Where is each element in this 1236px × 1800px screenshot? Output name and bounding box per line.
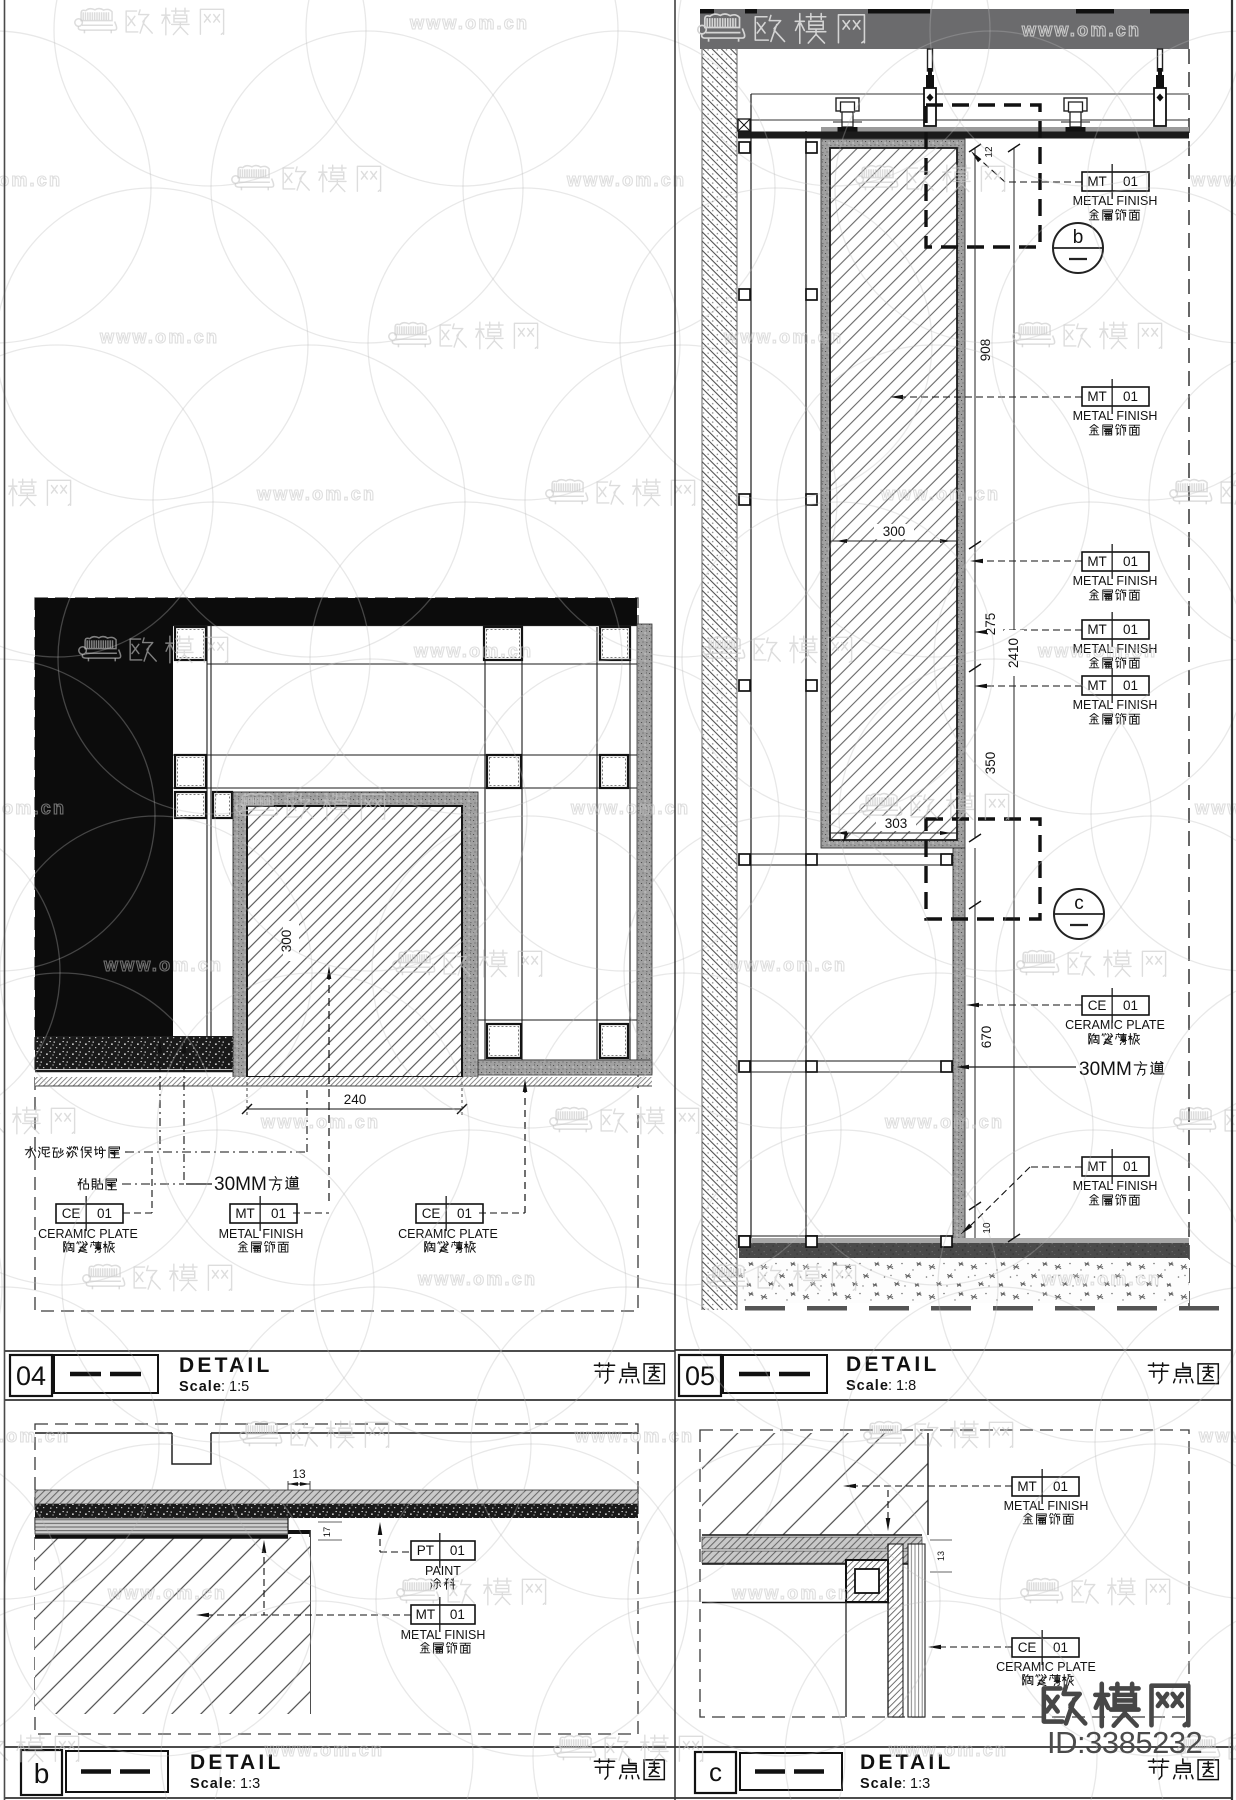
svg-text:13: 13 bbox=[936, 1551, 946, 1561]
svg-text:MT: MT bbox=[235, 1206, 255, 1221]
svg-text:: 1:8: : 1:8 bbox=[888, 1378, 916, 1394]
svg-text:www.om.cn: www.om.cn bbox=[0, 798, 66, 818]
svg-text:: 1:3: : 1:3 bbox=[232, 1776, 260, 1792]
svg-text:METAL FINISH: METAL FINISH bbox=[219, 1227, 304, 1241]
svg-text:04: 04 bbox=[16, 1361, 46, 1391]
svg-text:www.om.cn: www.om.cn bbox=[0, 170, 62, 190]
svg-text:240: 240 bbox=[344, 1092, 367, 1107]
svg-text:www.om.cn: www.om.cn bbox=[1037, 641, 1157, 661]
svg-text:www.om.cn: www.om.cn bbox=[1198, 1426, 1236, 1446]
svg-text:01: 01 bbox=[1123, 998, 1138, 1013]
svg-text:www.om.cn: www.om.cn bbox=[723, 327, 843, 347]
svg-text:01: 01 bbox=[457, 1206, 472, 1221]
svg-text:c: c bbox=[709, 1757, 722, 1787]
svg-text:01: 01 bbox=[1123, 622, 1138, 637]
svg-text:01: 01 bbox=[271, 1206, 286, 1221]
svg-text:www.om.cn: www.om.cn bbox=[884, 1112, 1004, 1132]
svg-text:01: 01 bbox=[1053, 1640, 1068, 1655]
svg-text:www.om.cn: www.om.cn bbox=[99, 327, 219, 347]
svg-text:www.om.cn: www.om.cn bbox=[103, 955, 223, 975]
svg-text:CERAMIC PLATE: CERAMIC PLATE bbox=[398, 1227, 498, 1241]
svg-text:www.om.cn: www.om.cn bbox=[566, 170, 686, 190]
svg-text:300: 300 bbox=[883, 524, 906, 539]
svg-text:www.om.cn: www.om.cn bbox=[256, 484, 376, 504]
svg-text:CE: CE bbox=[1018, 1640, 1037, 1655]
svg-text:05: 05 bbox=[685, 1361, 715, 1391]
svg-text:www.om.cn: www.om.cn bbox=[409, 13, 529, 33]
svg-text:www.om.cn: www.om.cn bbox=[1190, 170, 1236, 190]
svg-text:www.om.cn: www.om.cn bbox=[0, 1426, 70, 1446]
svg-text:www.om.cn: www.om.cn bbox=[1021, 20, 1141, 40]
svg-text:PT: PT bbox=[417, 1543, 434, 1558]
svg-text:www.om.cn: www.om.cn bbox=[1194, 798, 1236, 818]
svg-text:METAL FINISH: METAL FINISH bbox=[1073, 409, 1158, 423]
svg-text:01: 01 bbox=[450, 1607, 465, 1622]
svg-text:www.om.cn: www.om.cn bbox=[570, 798, 690, 818]
svg-text:01: 01 bbox=[450, 1543, 465, 1558]
svg-text:METAL FINISH: METAL FINISH bbox=[1073, 1179, 1158, 1193]
svg-text:www.om.cn: www.om.cn bbox=[574, 1426, 694, 1446]
svg-text:c: c bbox=[1074, 893, 1084, 914]
svg-text:www.om.cn: www.om.cn bbox=[727, 955, 847, 975]
svg-text:MT: MT bbox=[1087, 174, 1107, 189]
svg-text:MT: MT bbox=[1087, 389, 1107, 404]
svg-text:www.om.cn: www.om.cn bbox=[264, 1740, 384, 1760]
svg-text:www.om.cn: www.om.cn bbox=[1041, 1269, 1161, 1289]
svg-text:MT: MT bbox=[416, 1607, 436, 1622]
svg-text:DETAIL: DETAIL bbox=[179, 1354, 272, 1377]
svg-text:CERAMIC PLATE: CERAMIC PLATE bbox=[996, 1660, 1096, 1674]
svg-text:ID:3385232: ID:3385232 bbox=[1047, 1725, 1202, 1760]
svg-text:Scale: Scale bbox=[846, 1378, 889, 1394]
svg-text:01: 01 bbox=[1123, 389, 1138, 404]
svg-text:www.om.cn: www.om.cn bbox=[880, 484, 1000, 504]
svg-text:17: 17 bbox=[322, 1527, 333, 1538]
svg-text:www.om.cn: www.om.cn bbox=[888, 1740, 1008, 1760]
svg-text:www.om.cn: www.om.cn bbox=[260, 1112, 380, 1132]
svg-text:: 1:5: : 1:5 bbox=[221, 1379, 249, 1395]
svg-text:METAL FINISH: METAL FINISH bbox=[1004, 1499, 1089, 1513]
svg-text:30MM: 30MM bbox=[1079, 1059, 1132, 1080]
svg-text:MT: MT bbox=[1087, 554, 1107, 569]
svg-text:MT: MT bbox=[1017, 1479, 1037, 1494]
svg-text:METAL FINISH: METAL FINISH bbox=[1073, 574, 1158, 588]
svg-text:13: 13 bbox=[292, 1467, 306, 1481]
svg-text:www.om.cn: www.om.cn bbox=[731, 1583, 851, 1603]
svg-text:Scale: Scale bbox=[860, 1776, 903, 1792]
svg-text:350: 350 bbox=[983, 752, 998, 775]
svg-text:www.om.cn: www.om.cn bbox=[417, 1269, 537, 1289]
svg-text:b: b bbox=[34, 1758, 50, 1789]
svg-text:www.om.cn: www.om.cn bbox=[107, 1583, 227, 1603]
svg-text:01: 01 bbox=[1123, 554, 1138, 569]
svg-text:10: 10 bbox=[982, 1222, 993, 1234]
svg-text:01: 01 bbox=[97, 1206, 112, 1221]
svg-text:Scale: Scale bbox=[179, 1379, 222, 1395]
svg-text:CERAMIC PLATE: CERAMIC PLATE bbox=[38, 1227, 138, 1241]
svg-text:01: 01 bbox=[1123, 1159, 1138, 1174]
svg-text:01: 01 bbox=[1123, 678, 1138, 693]
svg-text:Scale: Scale bbox=[190, 1776, 233, 1792]
svg-text:30MM: 30MM bbox=[214, 1174, 267, 1195]
svg-text:CERAMIC PLATE: CERAMIC PLATE bbox=[1065, 1018, 1165, 1032]
svg-text:CE: CE bbox=[422, 1206, 441, 1221]
svg-text:MT: MT bbox=[1087, 622, 1107, 637]
svg-text:CE: CE bbox=[1088, 998, 1107, 1013]
svg-text:: 1:3: : 1:3 bbox=[902, 1776, 930, 1792]
svg-text:670: 670 bbox=[979, 1026, 994, 1049]
svg-text:2410: 2410 bbox=[1006, 638, 1021, 668]
svg-text:METAL FINISH: METAL FINISH bbox=[1073, 698, 1158, 712]
svg-text:b: b bbox=[1073, 227, 1084, 248]
svg-text:www.om.cn: www.om.cn bbox=[413, 641, 533, 661]
